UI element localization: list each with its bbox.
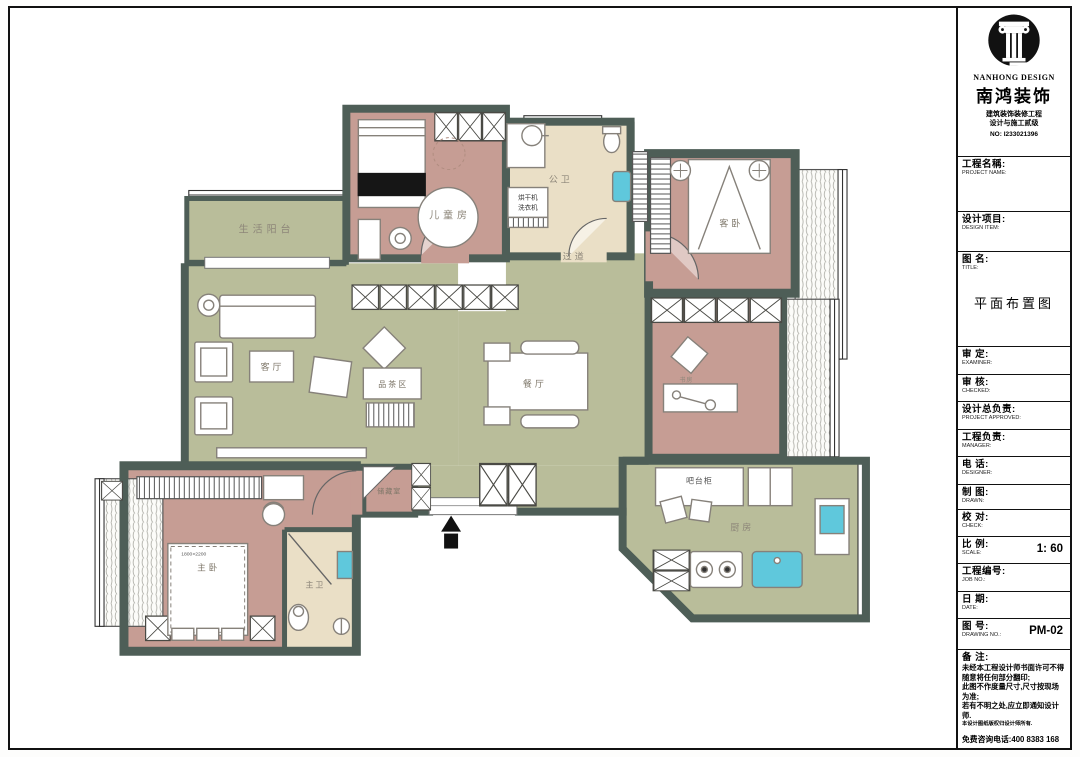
label-public-bath: 公卫 <box>549 175 573 185</box>
drawing-sheet: 生活阳台 儿童房 公卫 过道 客卧 客厅 品茶区 餐厅 书房 主卧 主卫 储藏室… <box>8 6 1072 750</box>
field-scale: 比 例: SCALE: 1: 60 <box>958 537 1070 564</box>
field-drawing-no: 图 号: DRAWING NO.: PM-02 <box>958 619 1070 650</box>
label-storage: 储藏室 <box>377 487 401 496</box>
dining-chair <box>521 415 579 428</box>
label-bar-cabinet: 吧台柜 <box>686 476 713 486</box>
nanhong-logo-icon <box>983 12 1045 72</box>
label-master-bath: 主卫 <box>305 579 325 589</box>
tv-cabinet <box>217 448 367 458</box>
label-guest-bedroom: 客卧 <box>719 217 743 228</box>
license-number: NO: I233021396 <box>990 131 1038 138</box>
tub <box>613 172 631 202</box>
kids-desk <box>358 219 380 259</box>
brand-name-cn: 南鸿装饰 <box>976 82 1052 107</box>
field-examiner: 审 定: EXAMINER: <box>958 347 1070 375</box>
floor-plan-svg: 生活阳台 儿童房 公卫 过道 客卧 客厅 品茶区 餐厅 书房 主卧 主卫 储藏室… <box>10 8 956 748</box>
field-design-item: 设计项目: DESIGN ITEM: <box>958 212 1070 252</box>
vanity-chair <box>263 504 285 526</box>
master-bed <box>168 544 248 636</box>
label-tea-area: 品茶区 <box>378 379 408 389</box>
bar-stool <box>689 499 712 522</box>
cert-line-1: 建筑装饰装修工程 <box>986 110 1042 119</box>
logo-section: NANHONG DESIGN 南鸿装饰 建筑装饰装修工程 设计与施工贰级 NO:… <box>958 8 1070 157</box>
field-drawn: 制 图: DRAWN: <box>958 485 1070 510</box>
field-job-no: 工程编号: JOB NO.: <box>958 564 1070 592</box>
field-project-approved: 设计总负责: PROJECT APPROVED: <box>958 402 1070 430</box>
dresser <box>264 476 304 500</box>
field-phone: 电 话: DESIGNER: <box>958 457 1070 485</box>
dining-chair <box>521 341 579 354</box>
label-hallway: 过道 <box>563 250 587 261</box>
scale-value: 1: 60 <box>1037 543 1063 555</box>
remarks-section: 备 注: 未经本工程设计师书面许可不得 随意将任何部分翻印; 此图不作度量尺寸,… <box>958 650 1070 748</box>
ottoman <box>309 357 352 398</box>
drawing-number: PM-02 <box>1029 625 1063 637</box>
drawing-title: 平面布置图 <box>962 293 1066 312</box>
title-block: NANHONG DESIGN 南鸿装饰 建筑装饰装修工程 设计与施工贰级 NO:… <box>956 8 1070 748</box>
field-check: 校 对: CHECK: <box>958 510 1070 537</box>
dining-chair <box>484 343 510 361</box>
brand-name-en: NANHONG DESIGN <box>973 73 1054 82</box>
label-life-balcony: 生活阳台 <box>239 222 295 235</box>
cert-line-2: 设计与施工贰级 <box>990 119 1039 128</box>
shower-panel <box>337 552 352 579</box>
label-dining-room: 餐厅 <box>523 378 547 389</box>
bar-stool <box>660 496 687 523</box>
label-master-bedroom: 主卧 <box>197 562 220 572</box>
label-study: 书房 <box>679 376 693 384</box>
label-bed-size: 1800×2200 <box>181 552 206 558</box>
field-manager: 工程负责: MANAGER: <box>958 430 1070 457</box>
label-dryer: 烘干机 <box>518 192 538 201</box>
field-date: 日 期: DATE: <box>958 592 1070 619</box>
sofa <box>220 295 316 338</box>
field-project-name: 工程名稱: PROJECT NAME: <box>958 157 1070 212</box>
label-living-room: 客厅 <box>261 361 285 372</box>
label-washer: 洗衣机 <box>518 202 538 211</box>
field-checked: 审 核: CHECKED: <box>958 375 1070 402</box>
entry-arrow-icon <box>441 516 461 549</box>
hotline: 免费咨询电话:400 8383 168 <box>962 734 1066 745</box>
laundry-box <box>508 188 548 218</box>
dining-chair <box>484 407 510 425</box>
floor-plan-area: 生活阳台 儿童房 公卫 过道 客卧 客厅 品茶区 餐厅 书房 主卧 主卫 储藏室… <box>10 8 956 748</box>
label-kitchen: 厨房 <box>730 522 754 533</box>
label-kids-room: 儿童房 <box>429 208 471 221</box>
tea-bench <box>366 403 414 427</box>
drawing-sheet-page: 生活阳台 儿童房 公卫 过道 客卧 客厅 品茶区 餐厅 书房 主卧 主卫 储藏室… <box>0 0 1080 757</box>
field-title: 图 名: TITLE: 平面布置图 <box>958 252 1070 347</box>
